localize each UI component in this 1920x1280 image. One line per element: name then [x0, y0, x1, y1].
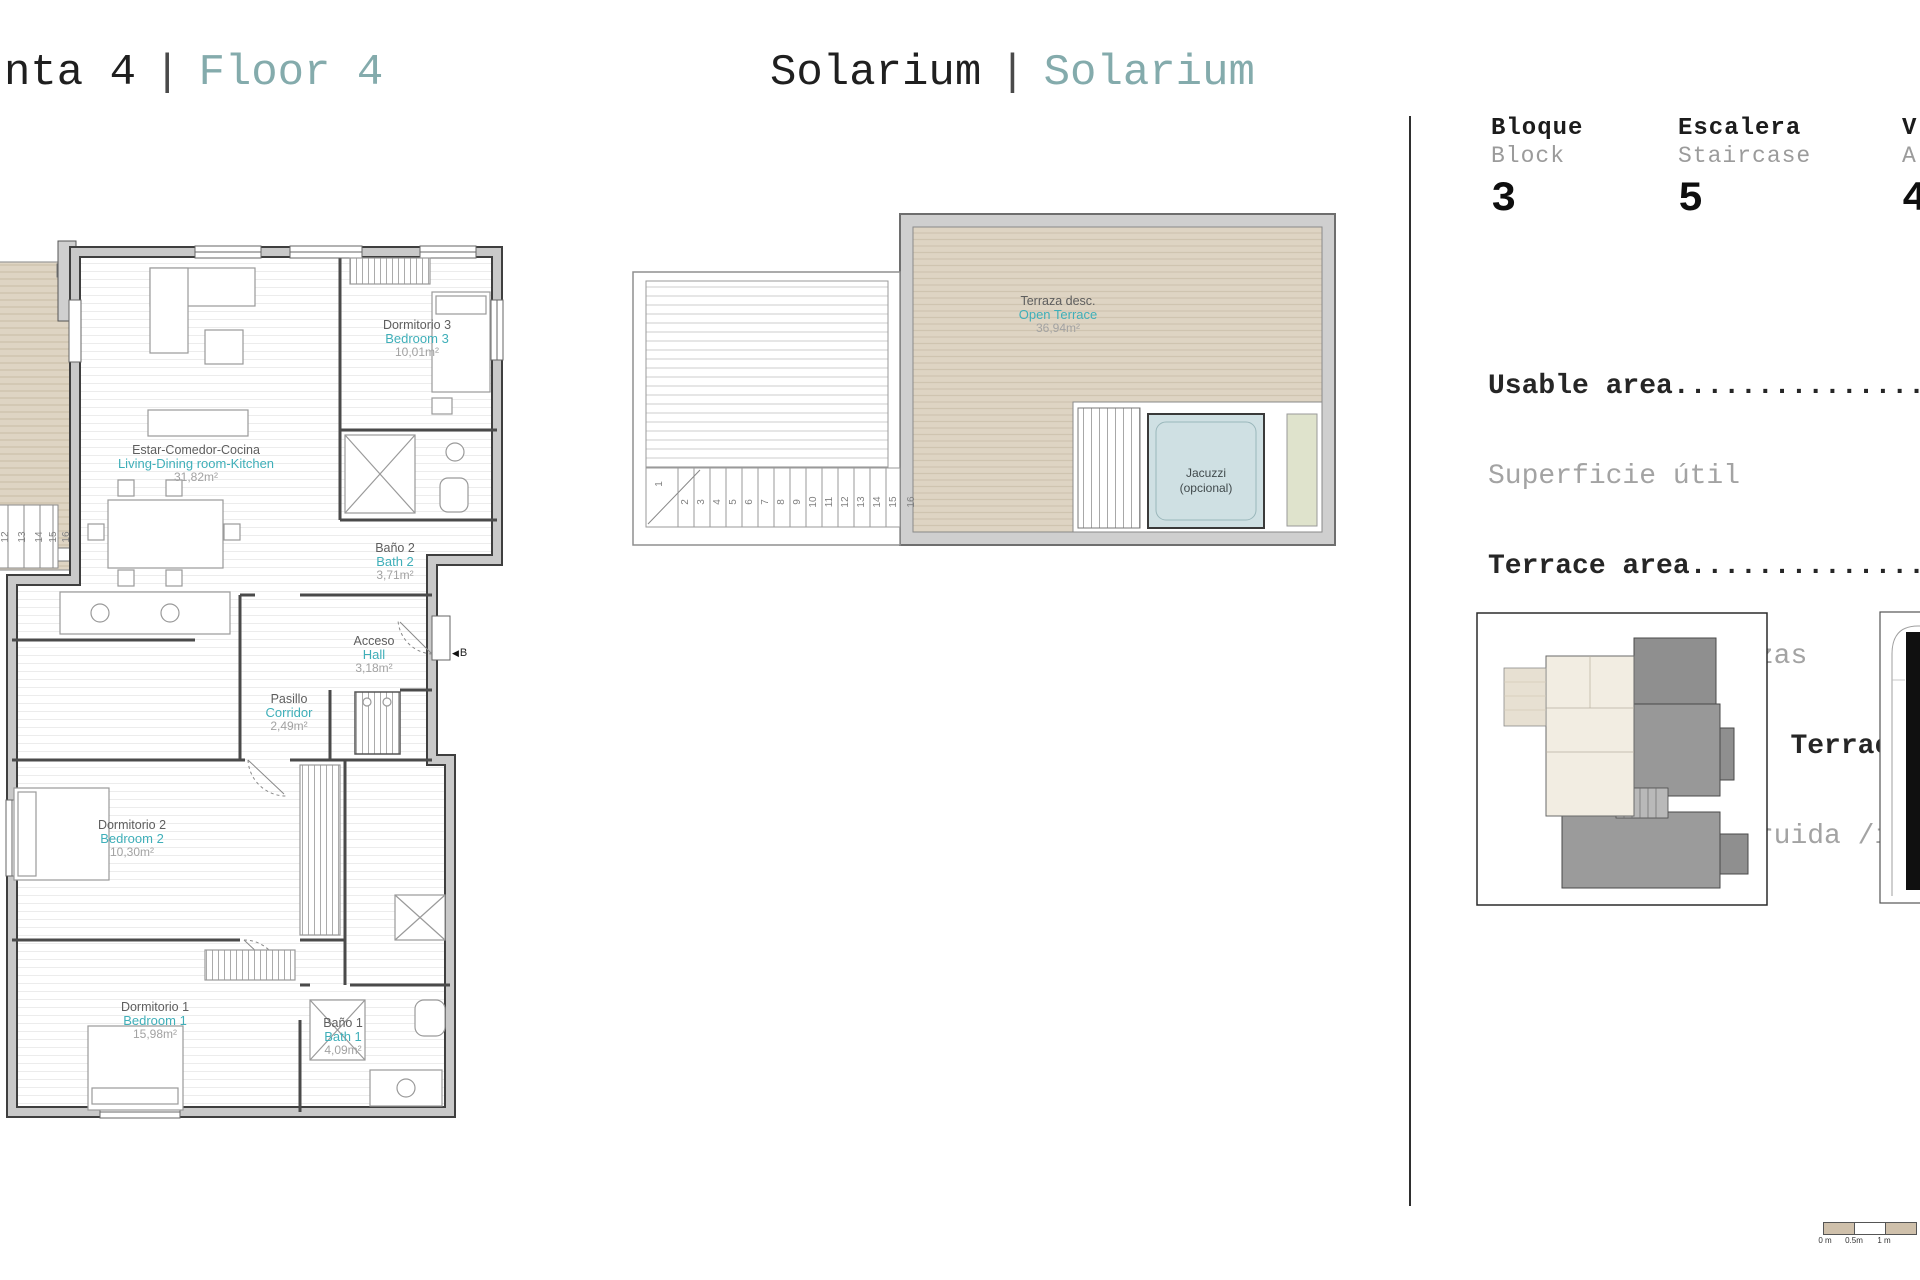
- scale-label-0: 0 m: [1812, 1236, 1838, 1245]
- entry-marker: ◀B: [452, 647, 467, 659]
- edge-cut-panel: [1878, 610, 1920, 905]
- title-separator: |: [154, 48, 180, 98]
- block-label-es: Bloque: [1491, 116, 1583, 142]
- stair-number: 9: [792, 492, 804, 512]
- jacuzzi-label-line1: Jacuzzi: [1146, 466, 1266, 481]
- vertical-divider: [1409, 116, 1411, 1206]
- stair-number: 15: [48, 527, 60, 547]
- jacuzzi-label-line2: (opcional): [1146, 481, 1266, 496]
- scale-segment: [1885, 1222, 1917, 1235]
- block-value: 3: [1491, 176, 1583, 222]
- stair-number: 14: [872, 492, 884, 512]
- north-arrow-shaft: [1906, 632, 1920, 890]
- scale-label-05: 0.5m: [1841, 1236, 1867, 1245]
- apartment-value: 4: [1902, 176, 1920, 222]
- key-plan: [1476, 612, 1768, 906]
- stair-number: 12: [0, 527, 12, 547]
- plan-sheet: nta 4|Floor 4 Solarium|Solarium: [0, 0, 1920, 1280]
- scale-segment: [1854, 1222, 1886, 1235]
- stair-number: 7: [760, 492, 772, 512]
- usable-area-es: Superficie útil: [1488, 462, 1920, 492]
- floor-title: nta 4|Floor 4: [4, 48, 383, 98]
- scale-bar: [1824, 1222, 1917, 1235]
- scale-label-1: 1 m: [1871, 1236, 1897, 1245]
- floor-plan-drawing: [0, 240, 515, 1125]
- stair-number: 14: [34, 527, 46, 547]
- stair-number: 11: [824, 492, 836, 512]
- solarium-drawing: [620, 200, 1360, 570]
- stair-number: 16: [61, 527, 73, 547]
- staircase-label-en: Staircase: [1678, 144, 1811, 169]
- stair-number: 10: [808, 492, 820, 512]
- stair-number: 4: [712, 492, 724, 512]
- apartment-outline: [12, 252, 497, 1112]
- stair-number: 5: [728, 492, 740, 512]
- side-terrace: [0, 241, 76, 570]
- solarium-title-en: Solarium: [1044, 48, 1255, 98]
- solarium-title-es: Solarium: [770, 48, 981, 98]
- stair-number: 13: [17, 527, 29, 547]
- scale-segment: [1823, 1222, 1855, 1235]
- stair-number: 15: [888, 492, 900, 512]
- stair-number: 1: [654, 474, 666, 494]
- solarium-title: Solarium|Solarium: [770, 48, 1255, 98]
- floor-title-es: nta 4: [4, 48, 136, 98]
- title-separator: |: [999, 48, 1025, 98]
- apartment-label-en: A: [1902, 144, 1920, 169]
- stair-number: 13: [856, 492, 868, 512]
- staircase-value: 5: [1678, 176, 1811, 222]
- jacuzzi-label: Jacuzzi (opcional): [1146, 466, 1266, 496]
- stair-number: 2: [680, 492, 692, 512]
- apartment-info: V A 4: [1902, 116, 1920, 222]
- usable-area-line: Usable area.............................…: [1488, 372, 1920, 402]
- block-info: Bloque Block 3: [1491, 116, 1583, 222]
- apartment-label-es: V: [1902, 116, 1920, 142]
- block-label-en: Block: [1491, 144, 1583, 169]
- staircase-label-es: Escalera: [1678, 116, 1811, 142]
- floor-title-en: Floor 4: [198, 48, 383, 98]
- terrace-area-line: Terrace area............................…: [1488, 552, 1920, 582]
- staircase-info: Escalera Staircase 5: [1678, 116, 1811, 222]
- stair-number: 12: [840, 492, 852, 512]
- stair-number: 6: [744, 492, 756, 512]
- entry-letter: B: [460, 647, 467, 659]
- stair-number: 16: [906, 492, 918, 512]
- stair-number: 3: [696, 492, 708, 512]
- stair-number: 8: [776, 492, 788, 512]
- entry-arrow-icon: ◀: [452, 648, 459, 658]
